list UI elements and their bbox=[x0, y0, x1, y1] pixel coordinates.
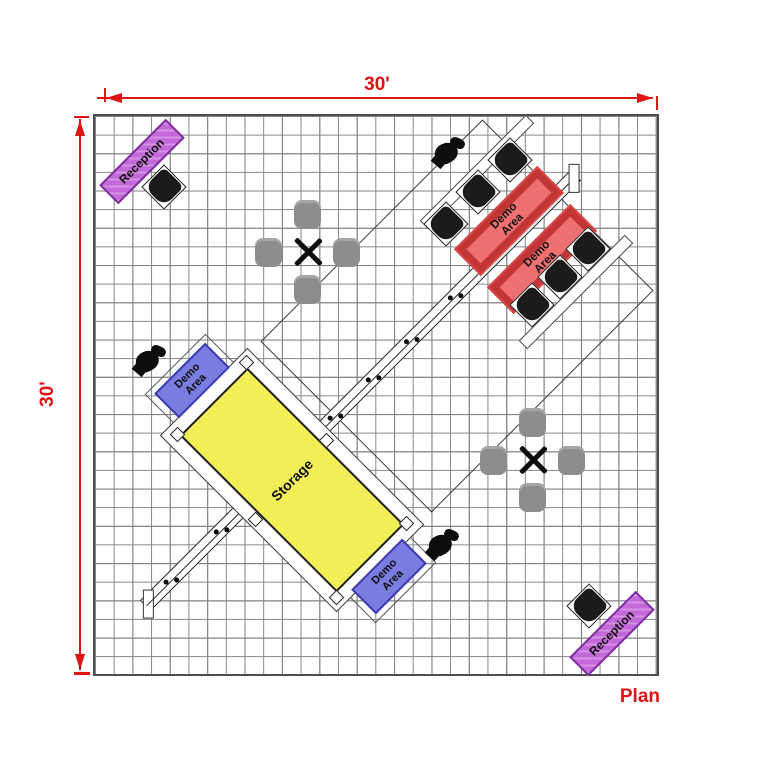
podium-silhouette bbox=[430, 136, 468, 170]
gray-chair bbox=[333, 238, 360, 267]
truss-light-icon bbox=[173, 576, 180, 583]
gray-chair bbox=[294, 200, 321, 229]
podium-silhouette bbox=[131, 344, 169, 378]
truss-light-icon bbox=[163, 579, 170, 586]
podium-silhouette bbox=[424, 528, 462, 562]
truss-light-icon bbox=[327, 415, 334, 422]
storage-label: Storage bbox=[268, 456, 316, 504]
truss-light-icon bbox=[365, 376, 372, 383]
dimension-line-left bbox=[79, 119, 81, 670]
gray-chair bbox=[255, 238, 282, 267]
dimension-label-left: 30' bbox=[37, 371, 59, 417]
gray-chair bbox=[294, 275, 321, 304]
arrowhead-up-icon bbox=[75, 120, 85, 136]
gray-chair bbox=[558, 446, 585, 475]
gray-chair bbox=[519, 483, 546, 512]
arrowhead-left-icon bbox=[106, 93, 122, 103]
truss-light-icon bbox=[447, 294, 454, 301]
dimension-tick bbox=[656, 96, 658, 110]
dimension-label-top: 30' bbox=[349, 74, 405, 96]
gray-chair bbox=[519, 408, 546, 437]
table-x-marker bbox=[515, 442, 551, 478]
dimension-tick bbox=[74, 672, 90, 675]
table-x-marker bbox=[290, 234, 326, 270]
dimension-line-top bbox=[97, 97, 653, 99]
dimension-tick bbox=[104, 88, 106, 102]
plan-title: Plan bbox=[590, 686, 660, 708]
truss-light-icon bbox=[223, 526, 230, 533]
arrowhead-right-icon bbox=[637, 93, 653, 103]
floor-plan-canvas: 30' 30' Storage bbox=[0, 0, 760, 760]
truss-light-icon bbox=[213, 528, 220, 535]
truss-light-icon bbox=[457, 292, 464, 299]
truss-light-icon bbox=[414, 336, 421, 343]
arrowhead-down-icon bbox=[75, 654, 85, 670]
dimension-tick bbox=[74, 116, 89, 118]
truss-light-icon bbox=[375, 374, 382, 381]
truss-light-icon bbox=[403, 338, 410, 345]
truss-light-icon bbox=[337, 412, 344, 419]
gray-chair bbox=[480, 446, 507, 475]
